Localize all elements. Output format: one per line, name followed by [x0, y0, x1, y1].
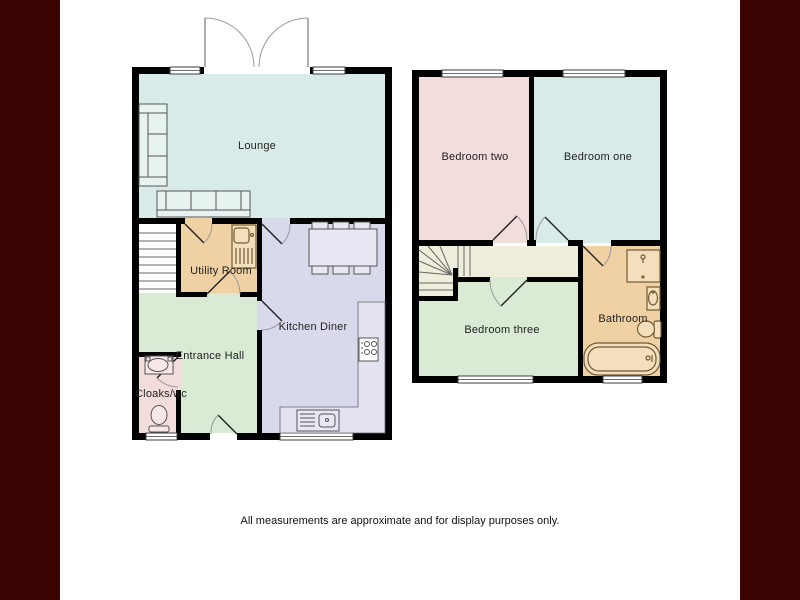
hob	[359, 338, 378, 361]
cloaks-label: Cloaks/wc	[135, 388, 187, 400]
gf-stairwell-area	[139, 224, 176, 293]
toilet	[149, 406, 169, 433]
floorplan-page: Lounge Utility Room Kitchen Diner Entran…	[0, 0, 800, 600]
ground-floor-plan	[132, 18, 392, 440]
dining-table	[309, 222, 377, 274]
bathroom-basin	[647, 287, 660, 310]
shower	[627, 250, 660, 282]
hall-label: Entrance Hall	[176, 350, 245, 362]
bedroom-three-area-ext	[419, 301, 458, 376]
sofa-vertical	[139, 104, 167, 186]
floorplan-canvas	[0, 0, 800, 600]
utility-label: Utility Room	[190, 265, 252, 277]
sofa-horizontal	[157, 191, 250, 217]
french-doors	[205, 18, 308, 67]
bedroom-one-label: Bedroom one	[564, 151, 632, 163]
front-door-opening	[210, 433, 237, 440]
utility-sink	[232, 225, 256, 268]
bedroom-three-label: Bedroom three	[464, 324, 539, 336]
kitchen-sink	[297, 410, 339, 431]
kitchen-label: Kitchen Diner	[279, 321, 348, 333]
lounge-label: Lounge	[238, 140, 276, 152]
bath	[584, 343, 660, 375]
cloaks-basin	[145, 356, 173, 374]
measurements-disclaimer: All measurements are approximate and for…	[241, 515, 560, 527]
first-floor-plan	[412, 70, 667, 383]
french-door-opening	[204, 67, 310, 74]
bedroom-two-label: Bedroom two	[441, 151, 508, 163]
bathroom-label: Bathroom	[598, 313, 647, 325]
